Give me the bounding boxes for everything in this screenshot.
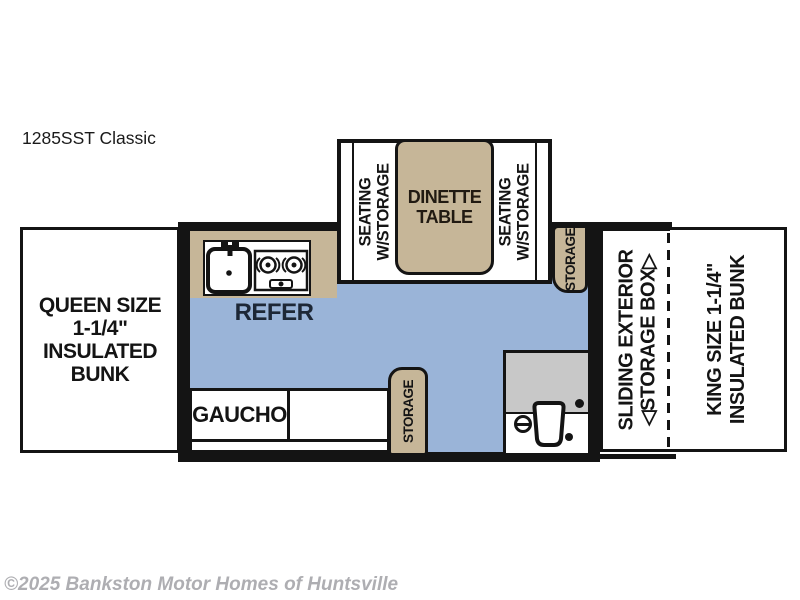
floorplan-canvas: 1285SST Classic QUEEN SIZE 1-1/4" INSULA…	[0, 0, 800, 600]
king-bunk-label-line: KING SIZE 1-1/4"	[705, 255, 728, 424]
sliding-storage-label-line: SLIDING EXTERIOR	[616, 250, 638, 431]
queen-bunk-label-line: QUEEN SIZE	[39, 294, 161, 317]
seating-label-line: SEATING	[357, 163, 375, 260]
copyright-watermark: ©2025 Bankston Motor Homes of Huntsville	[4, 574, 398, 596]
queen-bunk-label-line: 1-1/4"	[73, 317, 128, 340]
gaucho-label: GAUCHO	[192, 391, 287, 439]
dinette-table-label-line: TABLE	[416, 207, 472, 227]
seating-label-line: W/STORAGE	[515, 163, 533, 260]
queen-bunk-label-line: BUNK	[71, 363, 130, 386]
dinette-seating-right: SEATING W/STORAGE	[494, 143, 535, 280]
toilet-paper-holder-icon	[514, 415, 532, 433]
dinette-table-label-line: DINETTE	[408, 187, 482, 207]
queen-bunk-label-line: INSULATED	[43, 340, 157, 363]
storage-label: STORAGE	[563, 227, 578, 290]
sink-stove-icon	[203, 240, 311, 296]
sliding-storage-box-area: SLIDING EXTERIOR ◁STORAGE BOX▷	[600, 222, 672, 452]
sliding-storage-label-line: ◁STORAGE BOX▷	[638, 250, 660, 431]
storage-cabinet-bottom: STORAGE	[388, 367, 428, 456]
gaucho-backrest	[189, 439, 390, 453]
dinette-seat-back-divider	[535, 143, 537, 280]
faucet-icon	[228, 245, 233, 256]
floorplan-model-title: 1285SST Classic	[22, 128, 156, 149]
storage-label: STORAGE	[401, 380, 416, 443]
dinette-table: DINETTE TABLE	[395, 139, 494, 275]
seating-label-line: SEATING	[497, 163, 515, 260]
dinette-seating-left: SEATING W/STORAGE	[354, 143, 395, 280]
bathroom	[503, 350, 591, 456]
king-bunk-area: KING SIZE 1-1/4" INSULATED BUNK	[670, 227, 787, 452]
fixture-dot	[565, 433, 573, 441]
drain-dot	[575, 399, 584, 408]
gaucho-cushion-divider	[287, 391, 290, 439]
sliding-box-rail	[595, 454, 676, 459]
dinette-slideout: SEATING W/STORAGE DINETTE TABLE SEATING …	[337, 139, 552, 284]
gaucho-sofa: GAUCHO	[189, 388, 390, 442]
queen-bunk-area: QUEEN SIZE 1-1/4" INSULATED BUNK	[20, 227, 180, 453]
refer-label: REFER	[228, 299, 320, 327]
king-bunk-label-line: INSULATED BUNK	[727, 255, 750, 424]
seating-label-line: W/STORAGE	[375, 163, 393, 260]
storage-cabinet-top: STORAGE	[552, 225, 588, 293]
toilet-icon	[530, 401, 568, 447]
